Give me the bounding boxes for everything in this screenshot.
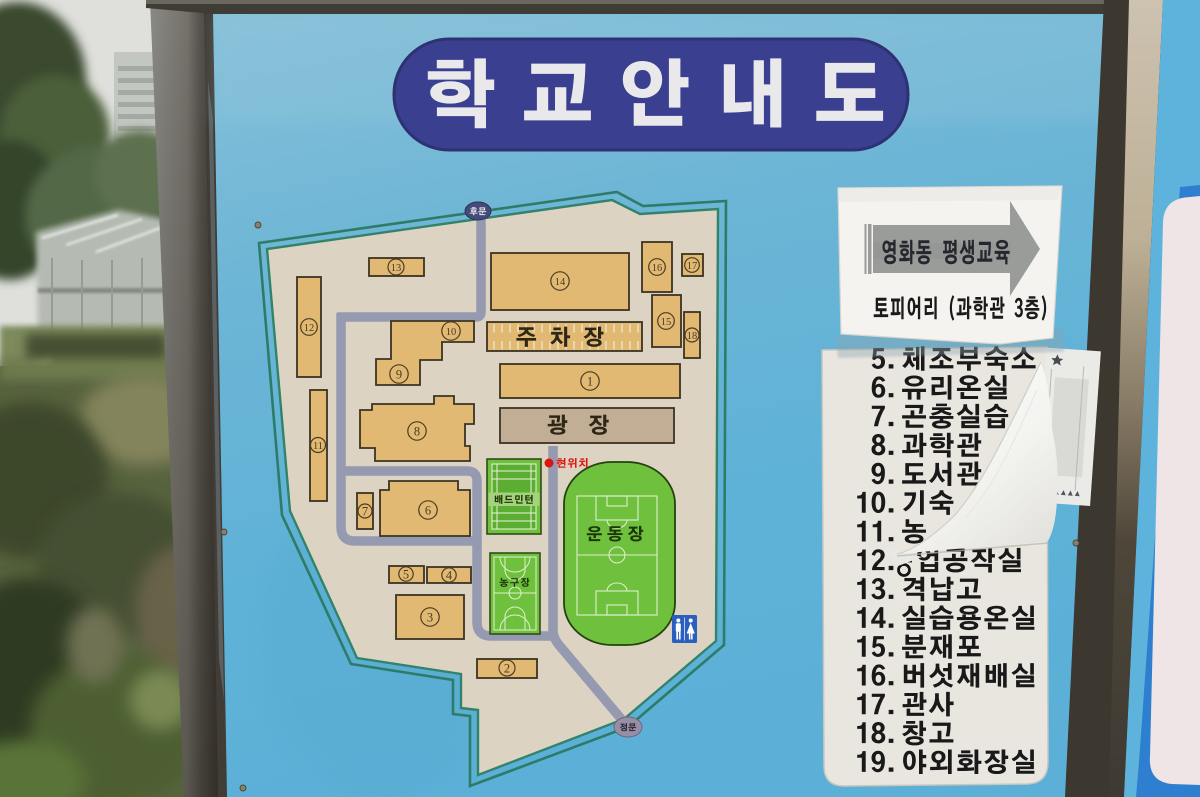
svg-text:11: 11	[313, 441, 323, 452]
svg-text:17: 17	[687, 261, 698, 272]
svg-text:5: 5	[403, 568, 409, 582]
svg-text:15: 15	[661, 317, 672, 328]
svg-text:18: 18	[687, 331, 698, 342]
svg-text:7: 7	[362, 505, 368, 519]
svg-text:9: 9	[396, 368, 402, 382]
svg-text:12: 12	[304, 323, 315, 334]
svg-text:13: 13	[391, 263, 402, 274]
svg-text:14: 14	[555, 277, 566, 288]
svg-text:10: 10	[446, 327, 457, 338]
svg-text:3: 3	[427, 611, 433, 625]
svg-text:4: 4	[446, 569, 453, 583]
svg-text:16: 16	[652, 263, 663, 274]
svg-text:1: 1	[587, 375, 593, 389]
svg-text:8: 8	[414, 425, 420, 439]
svg-text:2: 2	[504, 662, 510, 676]
svg-text:6: 6	[425, 504, 431, 518]
